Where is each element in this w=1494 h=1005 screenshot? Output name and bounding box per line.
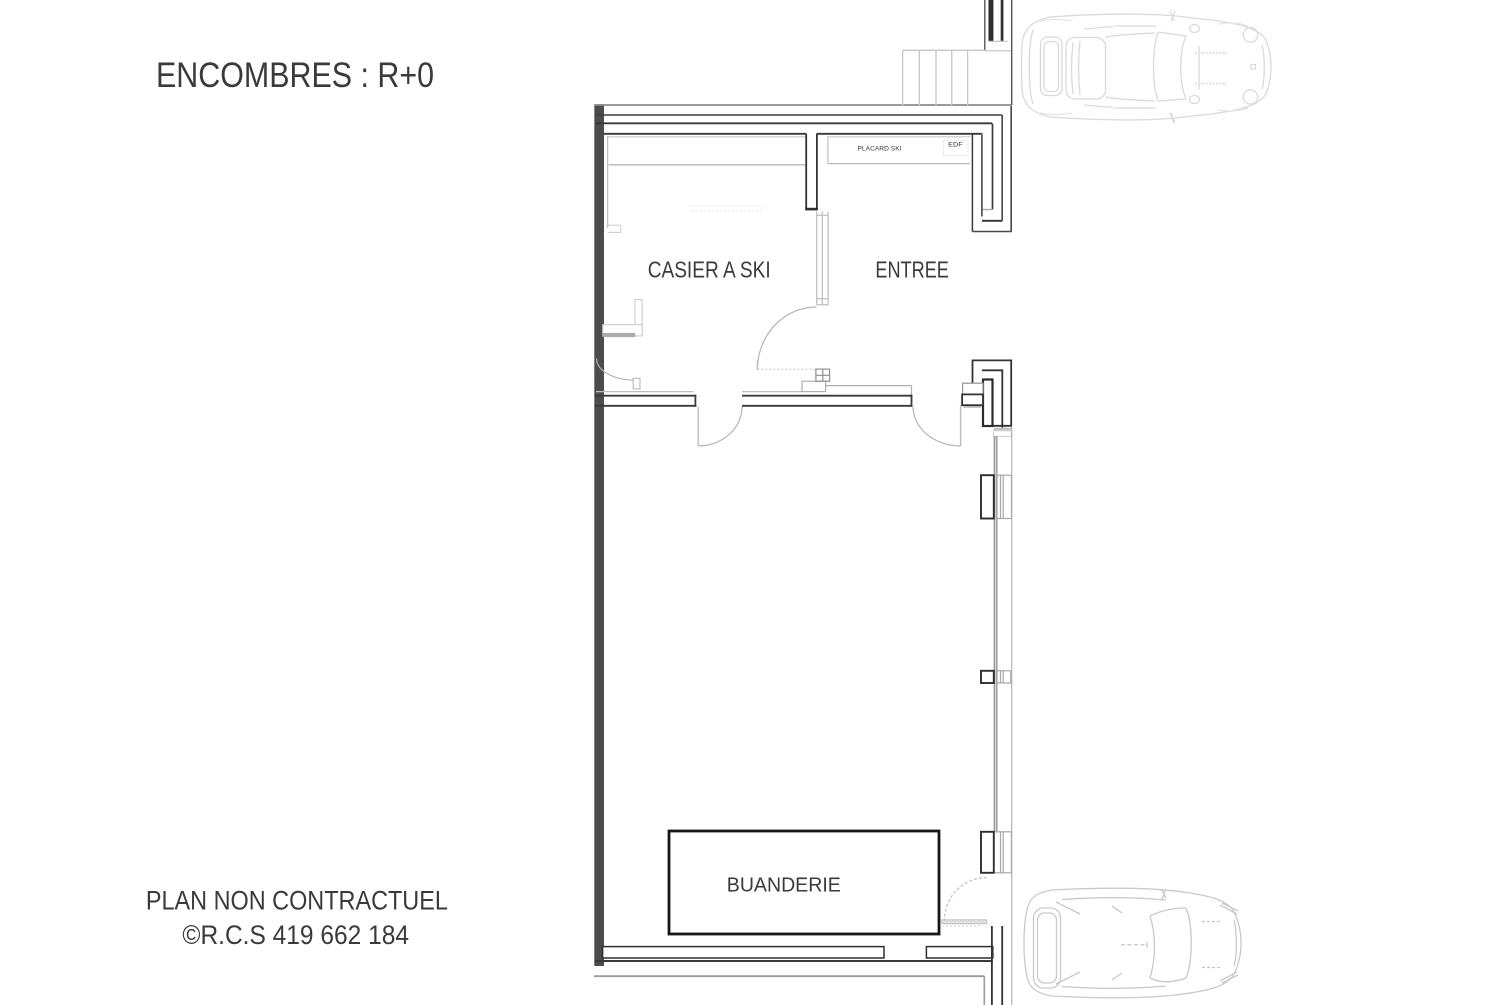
svg-text:PLAN NON CONTRACTUEL: PLAN NON CONTRACTUEL (146, 886, 448, 916)
svg-text:PLACARD SKI: PLACARD SKI (858, 146, 902, 153)
svg-text:CASIER A SKI: CASIER A SKI (648, 256, 771, 282)
svg-text:BUANDERIE: BUANDERIE (727, 875, 841, 897)
svg-text:EDF: EDF (948, 142, 963, 148)
svg-text:ENCOMBRES : R+0: ENCOMBRES : R+0 (156, 56, 434, 95)
svg-text:©R.C.S 419 662 184: ©R.C.S 419 662 184 (182, 920, 409, 950)
svg-text:ENTREE: ENTREE (875, 256, 949, 282)
